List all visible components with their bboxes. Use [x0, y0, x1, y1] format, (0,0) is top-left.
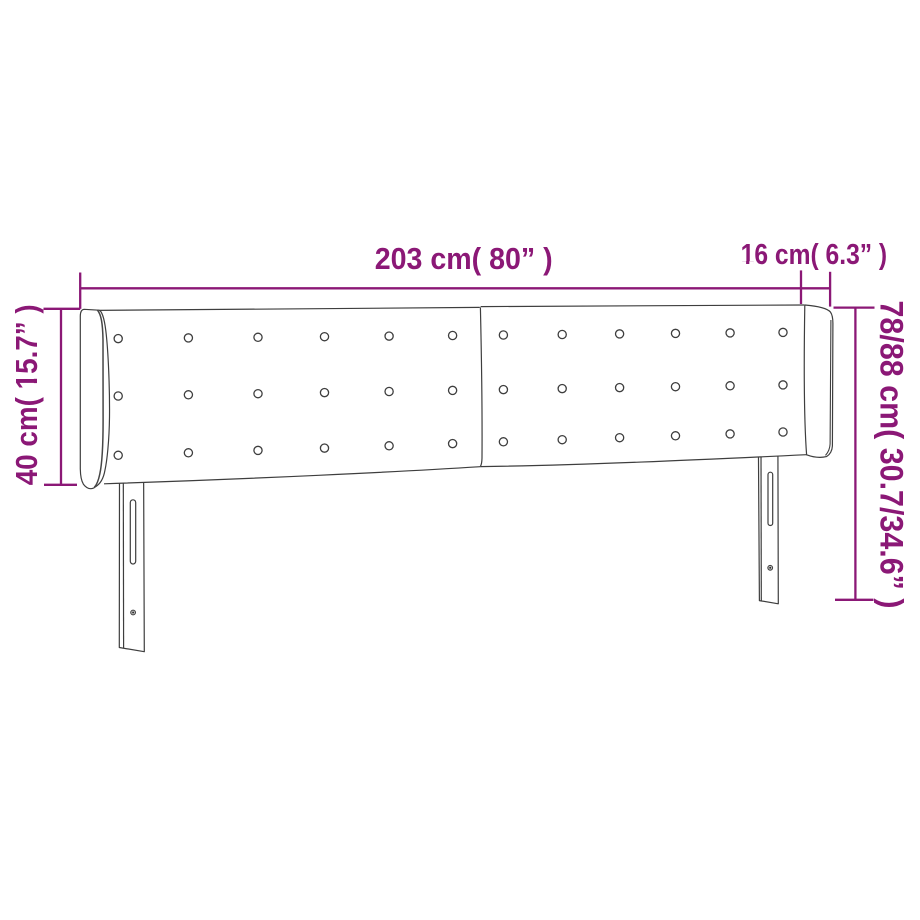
svg-text:16 cm( 6.3” ): 16 cm( 6.3” ): [741, 239, 888, 271]
svg-text:203 cm( 80” ): 203 cm( 80” ): [375, 242, 553, 276]
svg-text:40 cm( 15.7” ): 40 cm( 15.7” ): [10, 304, 44, 485]
svg-text:78/88 cm( 30.7/34.6” ): 78/88 cm( 30.7/34.6” ): [874, 301, 910, 609]
